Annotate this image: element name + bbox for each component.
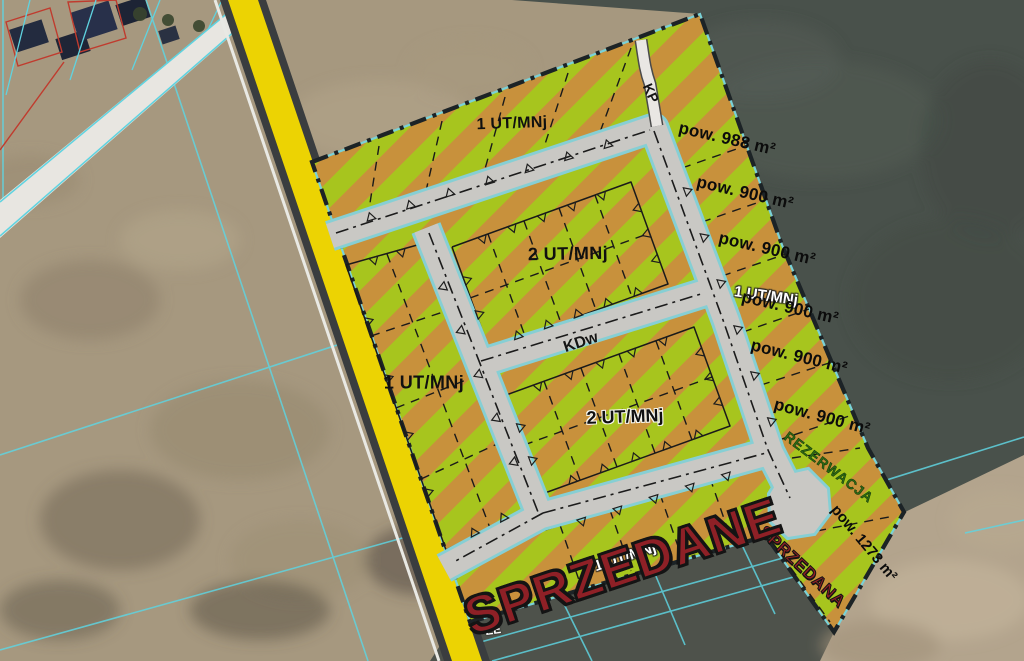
map-canvas [0,0,1024,661]
aerial-plan-map: 1 UT/MNjKPpow. 988 m²pow. 900 m²pow. 900… [0,0,1024,661]
